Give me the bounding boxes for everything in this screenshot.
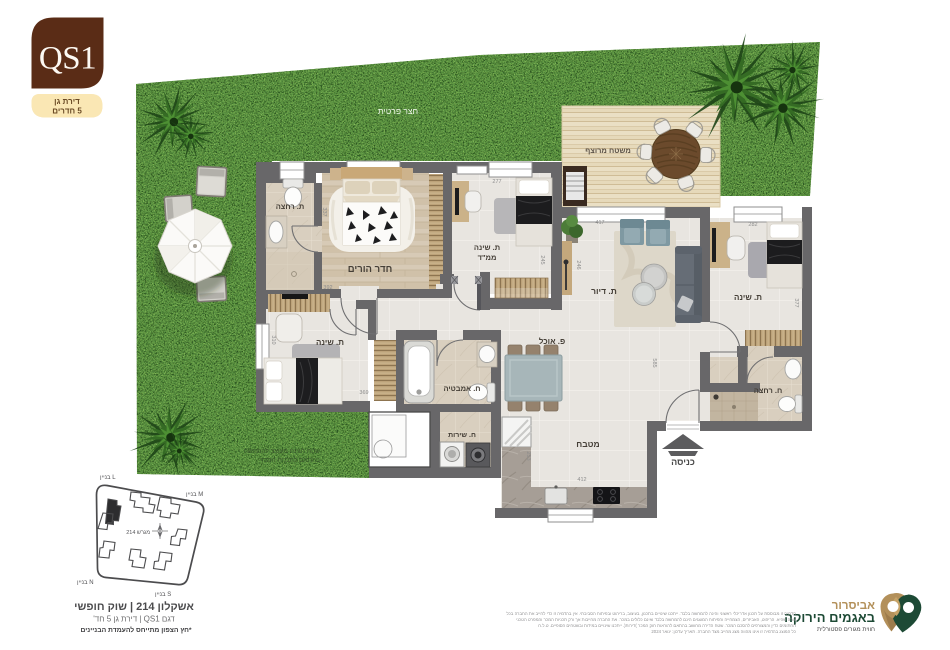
svg-text:246: 246: [575, 260, 581, 269]
svg-text:ת. שינה: ת. שינה: [316, 338, 344, 347]
svg-text:ח. רחצה: ח. רחצה: [754, 386, 782, 395]
svg-text:מטבח: מטבח: [576, 439, 599, 449]
svg-text:צורה שהיא. הריהוט, האביזרים, ה: צורה שהיא. הריהוט, האביזרים, הצמחייה והפ…: [516, 617, 797, 622]
svg-text:369: 369: [359, 390, 368, 396]
svg-text:בניין M: בניין M: [186, 492, 203, 498]
svg-text:585: 585: [651, 358, 657, 367]
svg-text:שטח הגינה מעוצב להמחשה: שטח הגינה מעוצב להמחשה: [244, 447, 320, 455]
svg-text:412: 412: [577, 477, 586, 483]
svg-text:חדר הורים: חדר הורים: [348, 264, 393, 275]
svg-text:282: 282: [748, 222, 757, 228]
svg-text:דירת גן: דירת גן: [54, 97, 80, 106]
svg-text:310: 310: [270, 335, 276, 344]
svg-text:ת. שינה: ת. שינה: [474, 243, 500, 252]
svg-text:ממ"ד: ממ"ד: [478, 253, 497, 262]
svg-text:ח. שירות: ח. שירות: [448, 432, 476, 439]
svg-text:5 חדרים: 5 חדרים: [52, 107, 82, 116]
svg-text:ח. אמבטיה: ח. אמבטיה: [443, 384, 480, 393]
svg-text:QS1: QS1: [39, 41, 96, 77]
svg-text:417: 417: [595, 220, 604, 226]
svg-text:בניין N: בניין N: [77, 580, 94, 586]
svg-text:253: 253: [525, 451, 531, 460]
svg-text:ת. דיור: ת. דיור: [591, 286, 617, 296]
svg-text:277: 277: [492, 179, 501, 185]
svg-text:377: 377: [793, 298, 799, 307]
svg-text:חווית מגורים פסטורלית: חווית מגורים פסטורלית: [817, 625, 875, 633]
svg-text:בניין L: בניין L: [100, 475, 116, 481]
svg-text:ת. רחצה: ת. רחצה: [276, 202, 305, 211]
svg-text:חצר פרטית: חצר פרטית: [378, 106, 418, 116]
svg-text:כל המוצג בהדמיה זו אינו מהווה: כל המוצג בהדמיה זו אינו מהווה מצג מחייב …: [651, 629, 796, 634]
svg-text:כניסה: כניסה: [671, 457, 695, 467]
svg-text:באגמים הירוקה: באגמים הירוקה: [784, 610, 875, 625]
svg-text:245: 245: [539, 255, 545, 264]
svg-text:בהתאם לתכנית המכר: בהתאם לתכנית המכר: [260, 456, 320, 464]
svg-text:*חץ הצפון מתייחס להעמדת הבניינ: *חץ הצפון מתייחס להעמדת הבניינים: [80, 626, 191, 634]
svg-text:ת. שינה: ת. שינה: [734, 293, 762, 302]
svg-text:אשקלון 214 | שוק חופשי: אשקלון 214 | שוק חופשי: [74, 600, 194, 613]
svg-text:מגרש 214: מגרש 214: [126, 530, 150, 536]
svg-text:פ. אוכל: פ. אוכל: [539, 337, 565, 346]
svg-text:392: 392: [323, 285, 332, 291]
svg-text:בניין S: בניין S: [155, 592, 171, 598]
svg-text:משטח מרוצף: משטח מרוצף: [585, 146, 631, 155]
svg-text:הדמיה זו מבוססת על תכנון אדריכ: הדמיה זו מבוססת על תכנון אדריכלי ראשוני …: [506, 611, 796, 616]
svg-text:החתומים כדין והמצורפים להסכם ה: החתומים כדין והמצורפים להסכם המכר. שטח ה…: [538, 623, 796, 628]
svg-text:דגם QS1 | דירת גן 5 חד': דגם QS1 | דירת גן 5 חד': [93, 615, 175, 624]
svg-text:337: 337: [321, 207, 327, 216]
